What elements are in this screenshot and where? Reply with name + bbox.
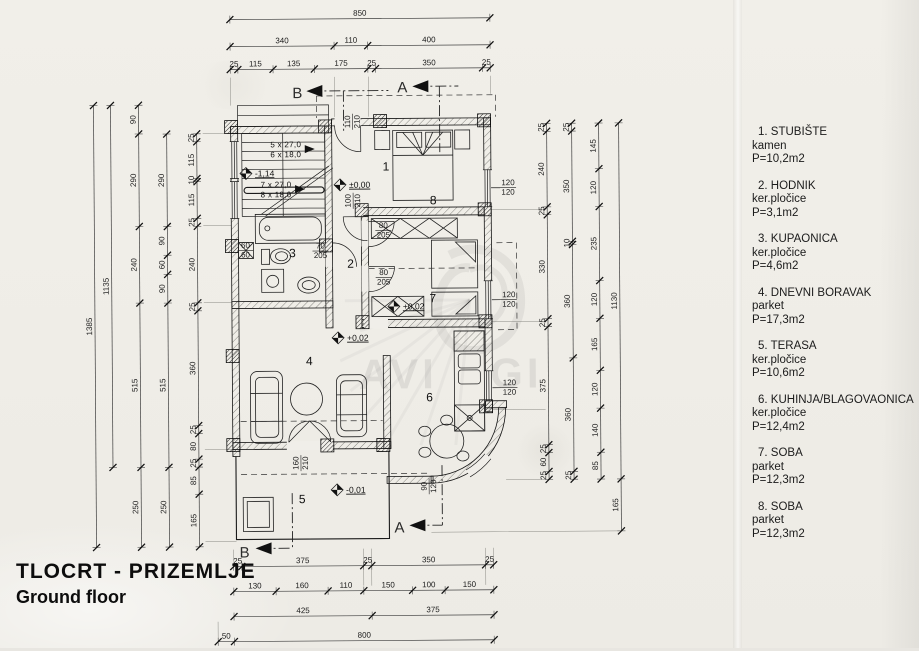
dimension-value: 150 — [381, 580, 395, 589]
section-arrow-b-top — [306, 85, 322, 97]
dimension-value: 160 — [295, 581, 309, 590]
dimension-value: 360 — [563, 294, 572, 308]
dimension-value: 90 — [158, 284, 167, 294]
dimension-value: 145 — [589, 139, 598, 153]
svg-text:90: 90 — [420, 481, 429, 491]
svg-text:8 x 18,0: 8 x 18,0 — [261, 190, 292, 199]
legend-item-2: 2. HODNIK ker.pločice P=3,1m2 — [752, 180, 917, 221]
dimension-value: 50 — [222, 632, 232, 641]
legend-item-7: 7. SOBA parket P=12,3m2 — [752, 447, 917, 488]
double-bed — [393, 130, 453, 200]
legend-room-area: P=10,2m2 — [752, 153, 917, 167]
legend-room-material: ker.pločice — [752, 354, 917, 368]
svg-text:60: 60 — [241, 241, 251, 250]
dim-chain: 253501036036025 — [562, 120, 579, 483]
nightstand — [455, 130, 470, 149]
window-room8 — [483, 170, 500, 207]
dimension-value: 25 — [562, 122, 571, 132]
dimension-value: 375 — [296, 556, 310, 565]
stair-run-label: 7 x 27,0 — [261, 180, 292, 189]
legend-room-name: 8. SOBA — [752, 501, 917, 515]
dimension-value: 165 — [611, 498, 620, 512]
svg-text:4: 4 — [306, 354, 313, 368]
legend-room-material: parket — [752, 514, 917, 528]
dimension-value: 350 — [422, 555, 436, 564]
drawing-subtitle: Ground floor — [16, 587, 256, 608]
legend-room-name: 5. TERASA — [752, 340, 917, 354]
section-mark-a-bottom: A — [394, 519, 404, 536]
legend-room-material: ker.pločice — [752, 247, 917, 261]
dimension-value: 150 — [463, 580, 477, 589]
svg-text:7: 7 — [429, 291, 436, 305]
dimension-value: 1130 — [610, 292, 619, 310]
legend-room-area: P=17,3m2 — [752, 314, 917, 328]
svg-text:2: 2 — [347, 257, 354, 271]
legend-item-5: 5. TERASA ker.pločice P=10,6m2 — [752, 340, 917, 381]
dimension-value: 140 — [591, 423, 600, 437]
dimension-value: 85 — [591, 461, 600, 471]
entry-door — [335, 126, 361, 152]
drawing-title: TLOCRT - PRIZEMLJE — [16, 560, 256, 584]
legend-room-name: 1. STUBIŠTE — [752, 126, 917, 140]
dimension-value: 25 — [538, 318, 547, 328]
door-size-label: 110210 — [343, 114, 362, 130]
svg-text:205: 205 — [314, 251, 328, 260]
entry-porch — [237, 105, 328, 127]
legend-room-area: P=3,1m2 — [752, 207, 917, 221]
svg-text:A: A — [397, 79, 407, 96]
room-number-2: 2 — [347, 257, 354, 271]
room-number-5: 5 — [299, 492, 306, 506]
room-number-7: 7 — [429, 291, 436, 305]
room-number-4: 4 — [306, 354, 313, 368]
dimension-value: 1385 — [85, 317, 94, 335]
dimension-value: 240 — [188, 257, 197, 271]
dimension-value: 240 — [130, 258, 139, 272]
dimension-value: 1135 — [102, 277, 111, 295]
svg-text:205: 205 — [377, 230, 391, 239]
dining-table — [419, 415, 469, 461]
washbasin — [298, 277, 320, 293]
svg-text:160: 160 — [291, 456, 300, 470]
dim-chain: 1135 — [100, 102, 117, 471]
dimension-value: 85 — [189, 476, 198, 486]
svg-text:±0,00: ±0,00 — [349, 180, 371, 190]
dimension-value: 100 — [422, 580, 436, 589]
svg-text:120: 120 — [502, 290, 516, 299]
svg-text:1: 1 — [383, 159, 390, 173]
svg-text:100: 100 — [344, 194, 353, 208]
door-size-label: 160210 — [291, 455, 310, 471]
svg-text:120: 120 — [502, 300, 516, 309]
door-size-label: 100210 — [344, 193, 363, 209]
dimension-value: 25 — [187, 133, 196, 143]
level-marker-symbol — [332, 332, 344, 344]
level-marker-symbol — [331, 484, 343, 496]
legend-room-area: P=4,6m2 — [752, 260, 917, 274]
dimension-value: 360 — [564, 407, 573, 421]
level-marker-label: ±0,00 — [349, 180, 371, 190]
room-number-3: 3 — [289, 246, 296, 260]
dim-chain: 340110400 — [226, 35, 493, 51]
dimension-value: 330 — [538, 260, 547, 274]
sink-basin — [458, 354, 480, 368]
svg-text:A: A — [394, 519, 404, 536]
svg-text:5 x 27,0: 5 x 27,0 — [270, 140, 301, 149]
legend-item-4: 4. DNEVNI BORAVAK parket P=17,3m2 — [752, 287, 917, 328]
svg-text:7 x 27,0: 7 x 27,0 — [261, 180, 292, 189]
dimension-value: 375 — [426, 605, 440, 614]
dim-chain: 2511510115252402536025802585165 — [187, 130, 204, 550]
watermark-letters: GI — [490, 349, 543, 396]
title-block: TLOCRT - PRIZEMLJE Ground floor — [16, 560, 256, 608]
level-marker-label: -0,01 — [346, 485, 366, 495]
dimension-value: 120 — [590, 292, 599, 306]
svg-text:AVI: AVI — [359, 350, 438, 398]
dimension-value: 515 — [130, 378, 139, 392]
svg-text:-1,14: -1,14 — [255, 168, 275, 178]
dim-chain: 252402533025375256025 — [537, 120, 554, 483]
legend-room-material: ker.pločice — [752, 407, 917, 421]
dimension-value: 90 — [129, 115, 138, 125]
stair-run-label: 8 x 18,0 — [261, 190, 292, 199]
svg-text:210: 210 — [301, 456, 310, 470]
legend-room-area: P=12,3m2 — [752, 474, 917, 488]
dimension-value: 25 — [189, 458, 198, 468]
dimension-value: 25 — [187, 217, 196, 227]
svg-text:B: B — [240, 544, 250, 561]
svg-text:120: 120 — [429, 479, 438, 493]
legend-room-material: parket — [752, 300, 917, 314]
dimension-value: 515 — [158, 378, 167, 392]
section-arrow-a-bottom — [409, 519, 425, 531]
dim-chain: 290906090515250 — [157, 131, 174, 551]
dim-chain: 253752535025 — [230, 555, 497, 571]
dimension-value: 360 — [188, 361, 197, 375]
room-number-8: 8 — [430, 193, 437, 207]
section-arrow-a-top — [412, 80, 428, 92]
dimension-value: 25 — [537, 122, 546, 132]
svg-text:120: 120 — [501, 178, 515, 187]
svg-text:205: 205 — [377, 277, 391, 286]
dimension-value: 165 — [590, 337, 599, 351]
svg-text:8: 8 — [430, 193, 437, 207]
svg-text:210: 210 — [353, 193, 362, 207]
dimension-value: 115 — [249, 59, 262, 68]
stair-run-label: 6 x 18,0 — [270, 150, 301, 159]
svg-text:6 x 18,0: 6 x 18,0 — [270, 150, 301, 159]
dimension-value: 425 — [296, 606, 310, 615]
dim-chain: 50800 — [215, 630, 498, 646]
section-mark-a-top: A — [397, 79, 407, 96]
dimension-value: 90 — [157, 236, 166, 246]
legend-room-material: kamen — [752, 140, 917, 154]
dimension-chains: 8503401104002511513517525350252537525350… — [83, 7, 626, 647]
dimension-value: 235 — [589, 236, 598, 250]
stair-direction-arrow — [305, 145, 315, 153]
dimension-value: 115 — [187, 193, 196, 206]
nightstand — [375, 130, 390, 149]
dimension-value: 60 — [539, 457, 548, 467]
dim-chain: 425375 — [230, 605, 497, 621]
svg-text:210: 210 — [353, 114, 362, 128]
level-marker-symbol — [388, 300, 400, 312]
dimension-value: 175 — [334, 59, 348, 68]
dimension-value: 25 — [189, 425, 198, 435]
svg-text:B: B — [292, 85, 302, 102]
svg-text:GI: GI — [490, 349, 543, 396]
dimension-value: 350 — [562, 179, 571, 193]
svg-text:70: 70 — [316, 241, 326, 250]
svg-text:80: 80 — [379, 268, 389, 277]
dimension-value: 25 — [363, 556, 373, 565]
svg-text:-0,01: -0,01 — [346, 485, 366, 495]
washing-machine — [262, 269, 284, 292]
dimension-value: 25 — [537, 206, 546, 216]
dimension-value: 110 — [340, 581, 353, 590]
dimension-value: 25 — [485, 555, 495, 564]
svg-text:60: 60 — [241, 250, 251, 259]
window-left-stair-2 — [230, 182, 239, 219]
dim-chain: 1130165 — [609, 119, 626, 534]
dimension-value: 350 — [422, 58, 436, 67]
dimension-value: 250 — [159, 500, 168, 514]
svg-text:+0,02: +0,02 — [403, 301, 425, 311]
dim-chain: 251151351752535025 — [227, 58, 494, 74]
bathroom-fixtures — [238, 214, 326, 294]
dimension-value: 80 — [189, 441, 198, 451]
legend-room-name: 3. KUPAONICA — [752, 233, 917, 247]
dimension-value: 400 — [422, 35, 436, 44]
section-mark-b-top: B — [292, 85, 302, 102]
toilet — [261, 249, 290, 265]
level-marker-label: +0,02 — [403, 301, 425, 311]
legend-room-area: P=12,3m2 — [752, 528, 917, 542]
level-marker-label: +0,02 — [347, 333, 369, 343]
dim-chain: 90290240515250 — [128, 102, 145, 551]
svg-text:5: 5 — [299, 492, 306, 506]
legend-item-1: 1. STUBIŠTE kamen P=10,2m2 — [752, 126, 917, 167]
dimension-value: 120 — [589, 180, 598, 194]
dimension-value: 60 — [158, 260, 167, 270]
dimension-value: 25 — [539, 444, 548, 454]
level-marker-label: -1,14 — [255, 168, 275, 178]
legend-item-6: 6. KUHINJA/BLAGOVAONICA ker.pločice P=12… — [752, 394, 917, 435]
dimension-value: 120 — [590, 382, 599, 396]
legend-room-area: P=10,6m2 — [752, 367, 917, 381]
room-legend: 1. STUBIŠTE kamen P=10,2m2 2. HODNIK ker… — [752, 126, 917, 554]
legend-item-8: 8. SOBA parket P=12,3m2 — [752, 501, 917, 542]
dimension-value: 25 — [188, 302, 197, 312]
room-number-1: 1 — [383, 159, 390, 173]
dimension-value: 135 — [287, 59, 301, 68]
svg-text:120: 120 — [501, 188, 515, 197]
dimension-value: 250 — [131, 500, 140, 514]
dim-chain: 850 — [226, 8, 493, 24]
svg-text:3: 3 — [289, 246, 296, 260]
dim-chain: 14512023512016512014085 — [589, 119, 606, 482]
window-size-label: 120120 — [500, 178, 516, 197]
legend-room-name: 6. KUHINJA/BLAGOVAONICA — [752, 394, 917, 408]
section-mark-b-bottom: B — [240, 544, 250, 561]
legend-room-name: 4. DNEVNI BORAVAK — [752, 287, 917, 301]
legend-room-name: 2. HODNIK — [752, 180, 917, 194]
dimension-value: 165 — [189, 513, 198, 527]
legend-room-name: 7. SOBA — [752, 447, 917, 461]
dimension-value: 290 — [157, 173, 166, 187]
section-arrow-b-bottom — [256, 542, 272, 554]
dimension-value: 850 — [353, 9, 367, 18]
door-size-label: 80205 — [375, 221, 391, 240]
watermark-letters: AVI — [359, 350, 438, 398]
dimension-value: 290 — [129, 173, 138, 187]
sofa — [250, 371, 283, 443]
scanned-floor-plan-page: 8503401104002511513517525350252537525350… — [0, 0, 919, 648]
dimension-value: 240 — [537, 162, 546, 176]
dimension-value: 25 — [564, 470, 573, 480]
legend-item-3: 3. KUPAONICA ker.pločice P=4,6m2 — [752, 233, 917, 274]
svg-text:80: 80 — [379, 221, 389, 230]
legend-room-area: P=12,4m2 — [752, 421, 917, 435]
svg-text:+0,02: +0,02 — [347, 333, 369, 343]
legend-room-material: ker.pločice — [752, 193, 917, 207]
bathtub — [255, 214, 325, 243]
level-marker-symbol — [334, 179, 346, 191]
coffee-table — [290, 383, 322, 415]
dimension-value: 25 — [539, 470, 548, 480]
legend-room-material: parket — [752, 461, 917, 475]
stair-run-label: 5 x 27,0 — [270, 140, 301, 149]
dimension-value: 340 — [275, 36, 289, 45]
window-size-label: 120120 — [501, 290, 517, 309]
svg-text:110: 110 — [343, 115, 352, 128]
window-left-stair-1 — [230, 142, 239, 179]
dim-chain: 1385 — [83, 102, 100, 551]
dimension-value: 115 — [187, 153, 196, 166]
dimension-value: 800 — [358, 631, 372, 640]
dimension-value: 110 — [344, 36, 357, 45]
door-size-label: 80205 — [376, 268, 392, 287]
